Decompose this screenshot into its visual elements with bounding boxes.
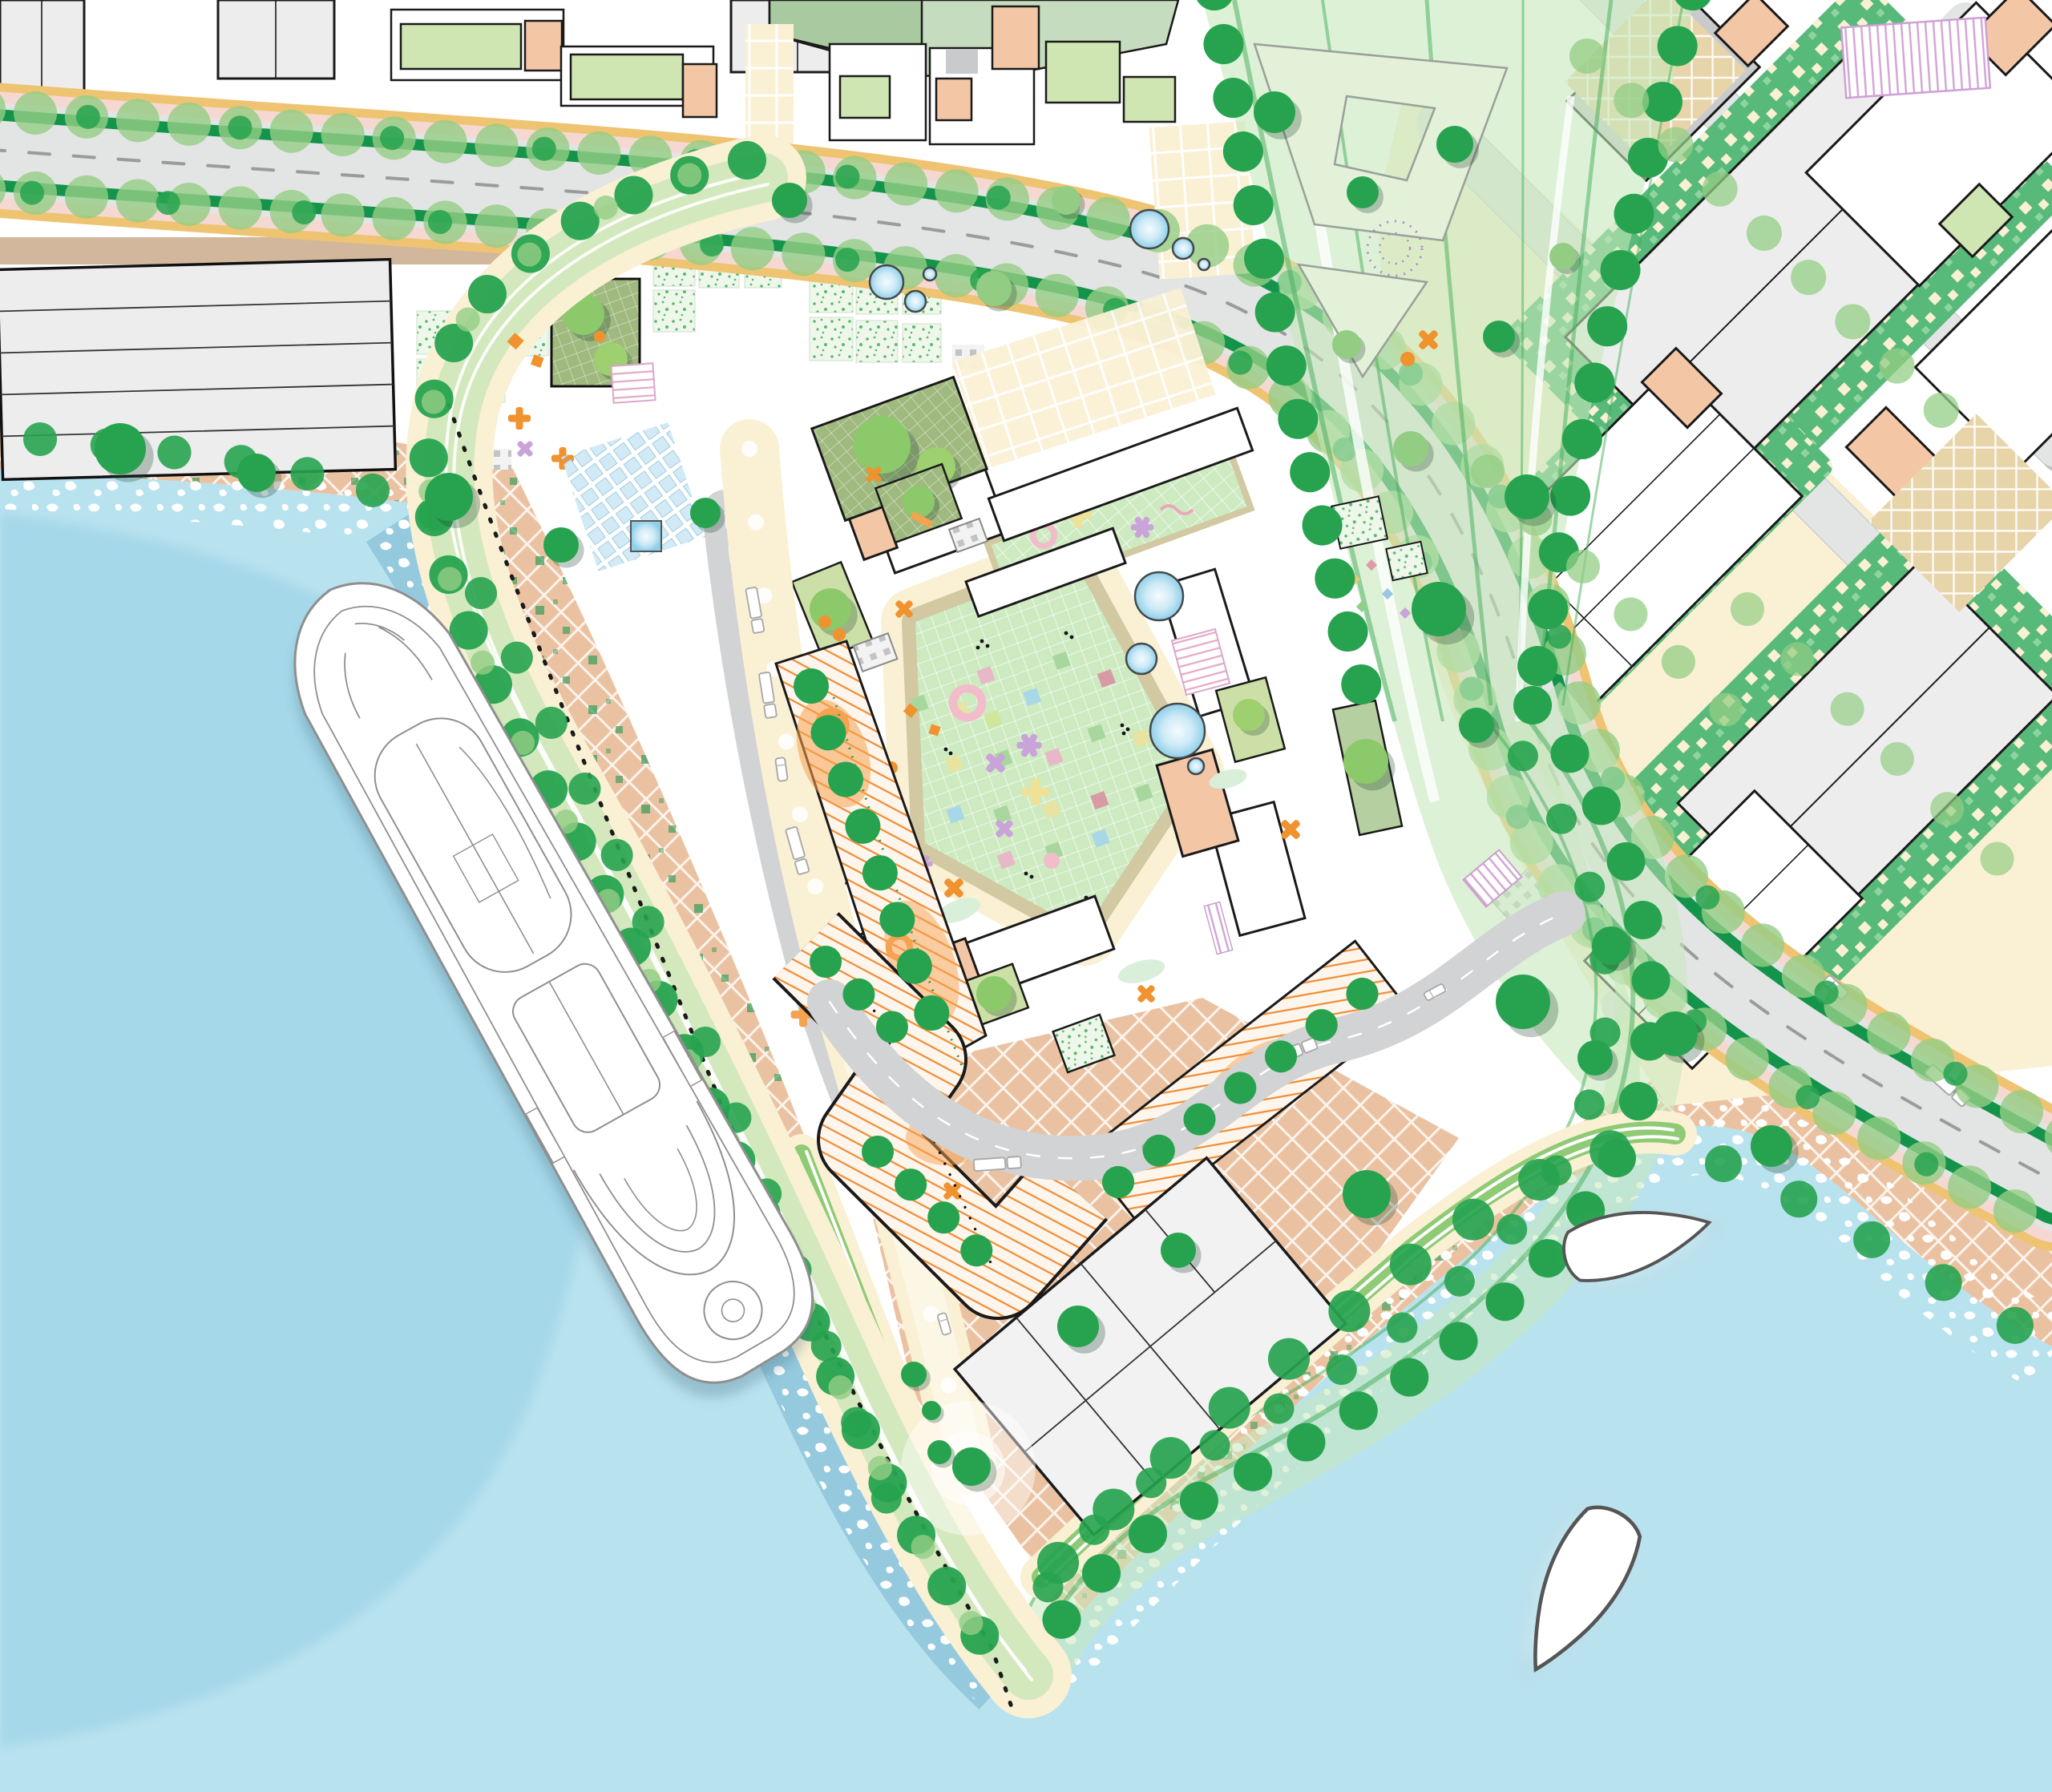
striped-hall [1841, 18, 1990, 98]
promenade-tip [901, 1401, 1036, 1536]
masterplan-map: Waterfront masterplan site plan [0, 0, 2052, 1792]
site-plan-canvas: Waterfront masterplan site plan [0, 0, 2052, 1792]
warehouse-block [0, 260, 395, 480]
